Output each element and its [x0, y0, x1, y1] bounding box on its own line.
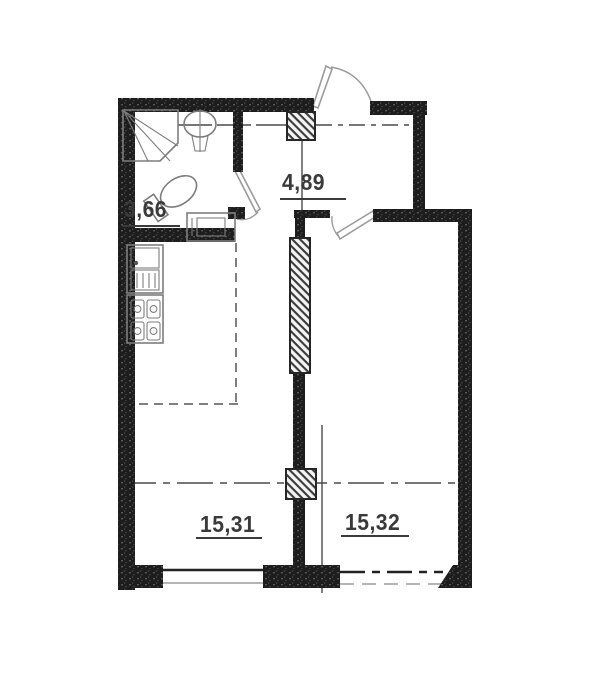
bathroom-right-wall — [233, 112, 243, 172]
room-label-bedroom-underline — [341, 535, 409, 537]
living-room-window — [163, 570, 263, 583]
room-label-bathroom-underline — [122, 225, 180, 227]
vent-shaft-bottom — [286, 469, 316, 499]
room-label-bathroom: 3,66 — [124, 196, 167, 223]
floor-plan-drawing — [0, 0, 600, 693]
riser-wall-hatched — [290, 238, 310, 373]
washbasin — [184, 109, 216, 152]
bottom-corner-right — [438, 565, 472, 588]
bottom-pier-left — [118, 565, 163, 588]
vent-shaft-top — [287, 112, 315, 140]
right-wall — [458, 209, 472, 588]
partition-wall-low — [293, 497, 305, 567]
partition-wall-mid — [293, 371, 305, 473]
room-label-hallway: 4,89 — [282, 169, 325, 196]
bottom-pier-center — [263, 565, 340, 588]
bathroom-bottom-wall — [118, 228, 235, 242]
room-label-living-kitchen: 15,31 — [200, 511, 255, 538]
bedroom-window-opening — [340, 572, 443, 584]
partition-wall-top — [295, 213, 305, 241]
room-label-living-kitchen-underline — [196, 537, 262, 539]
hallway-right-wall — [413, 101, 425, 215]
bedroom-top-wall — [373, 209, 470, 222]
entry-door — [313, 66, 371, 108]
bedroom-door — [332, 211, 375, 239]
room-label-hallway-underline — [280, 198, 346, 200]
room-label-bedroom: 15,32 — [345, 509, 400, 536]
floor-plan: 3,66 4,89 15,31 15,32 — [0, 0, 600, 693]
left-wall — [118, 98, 135, 590]
